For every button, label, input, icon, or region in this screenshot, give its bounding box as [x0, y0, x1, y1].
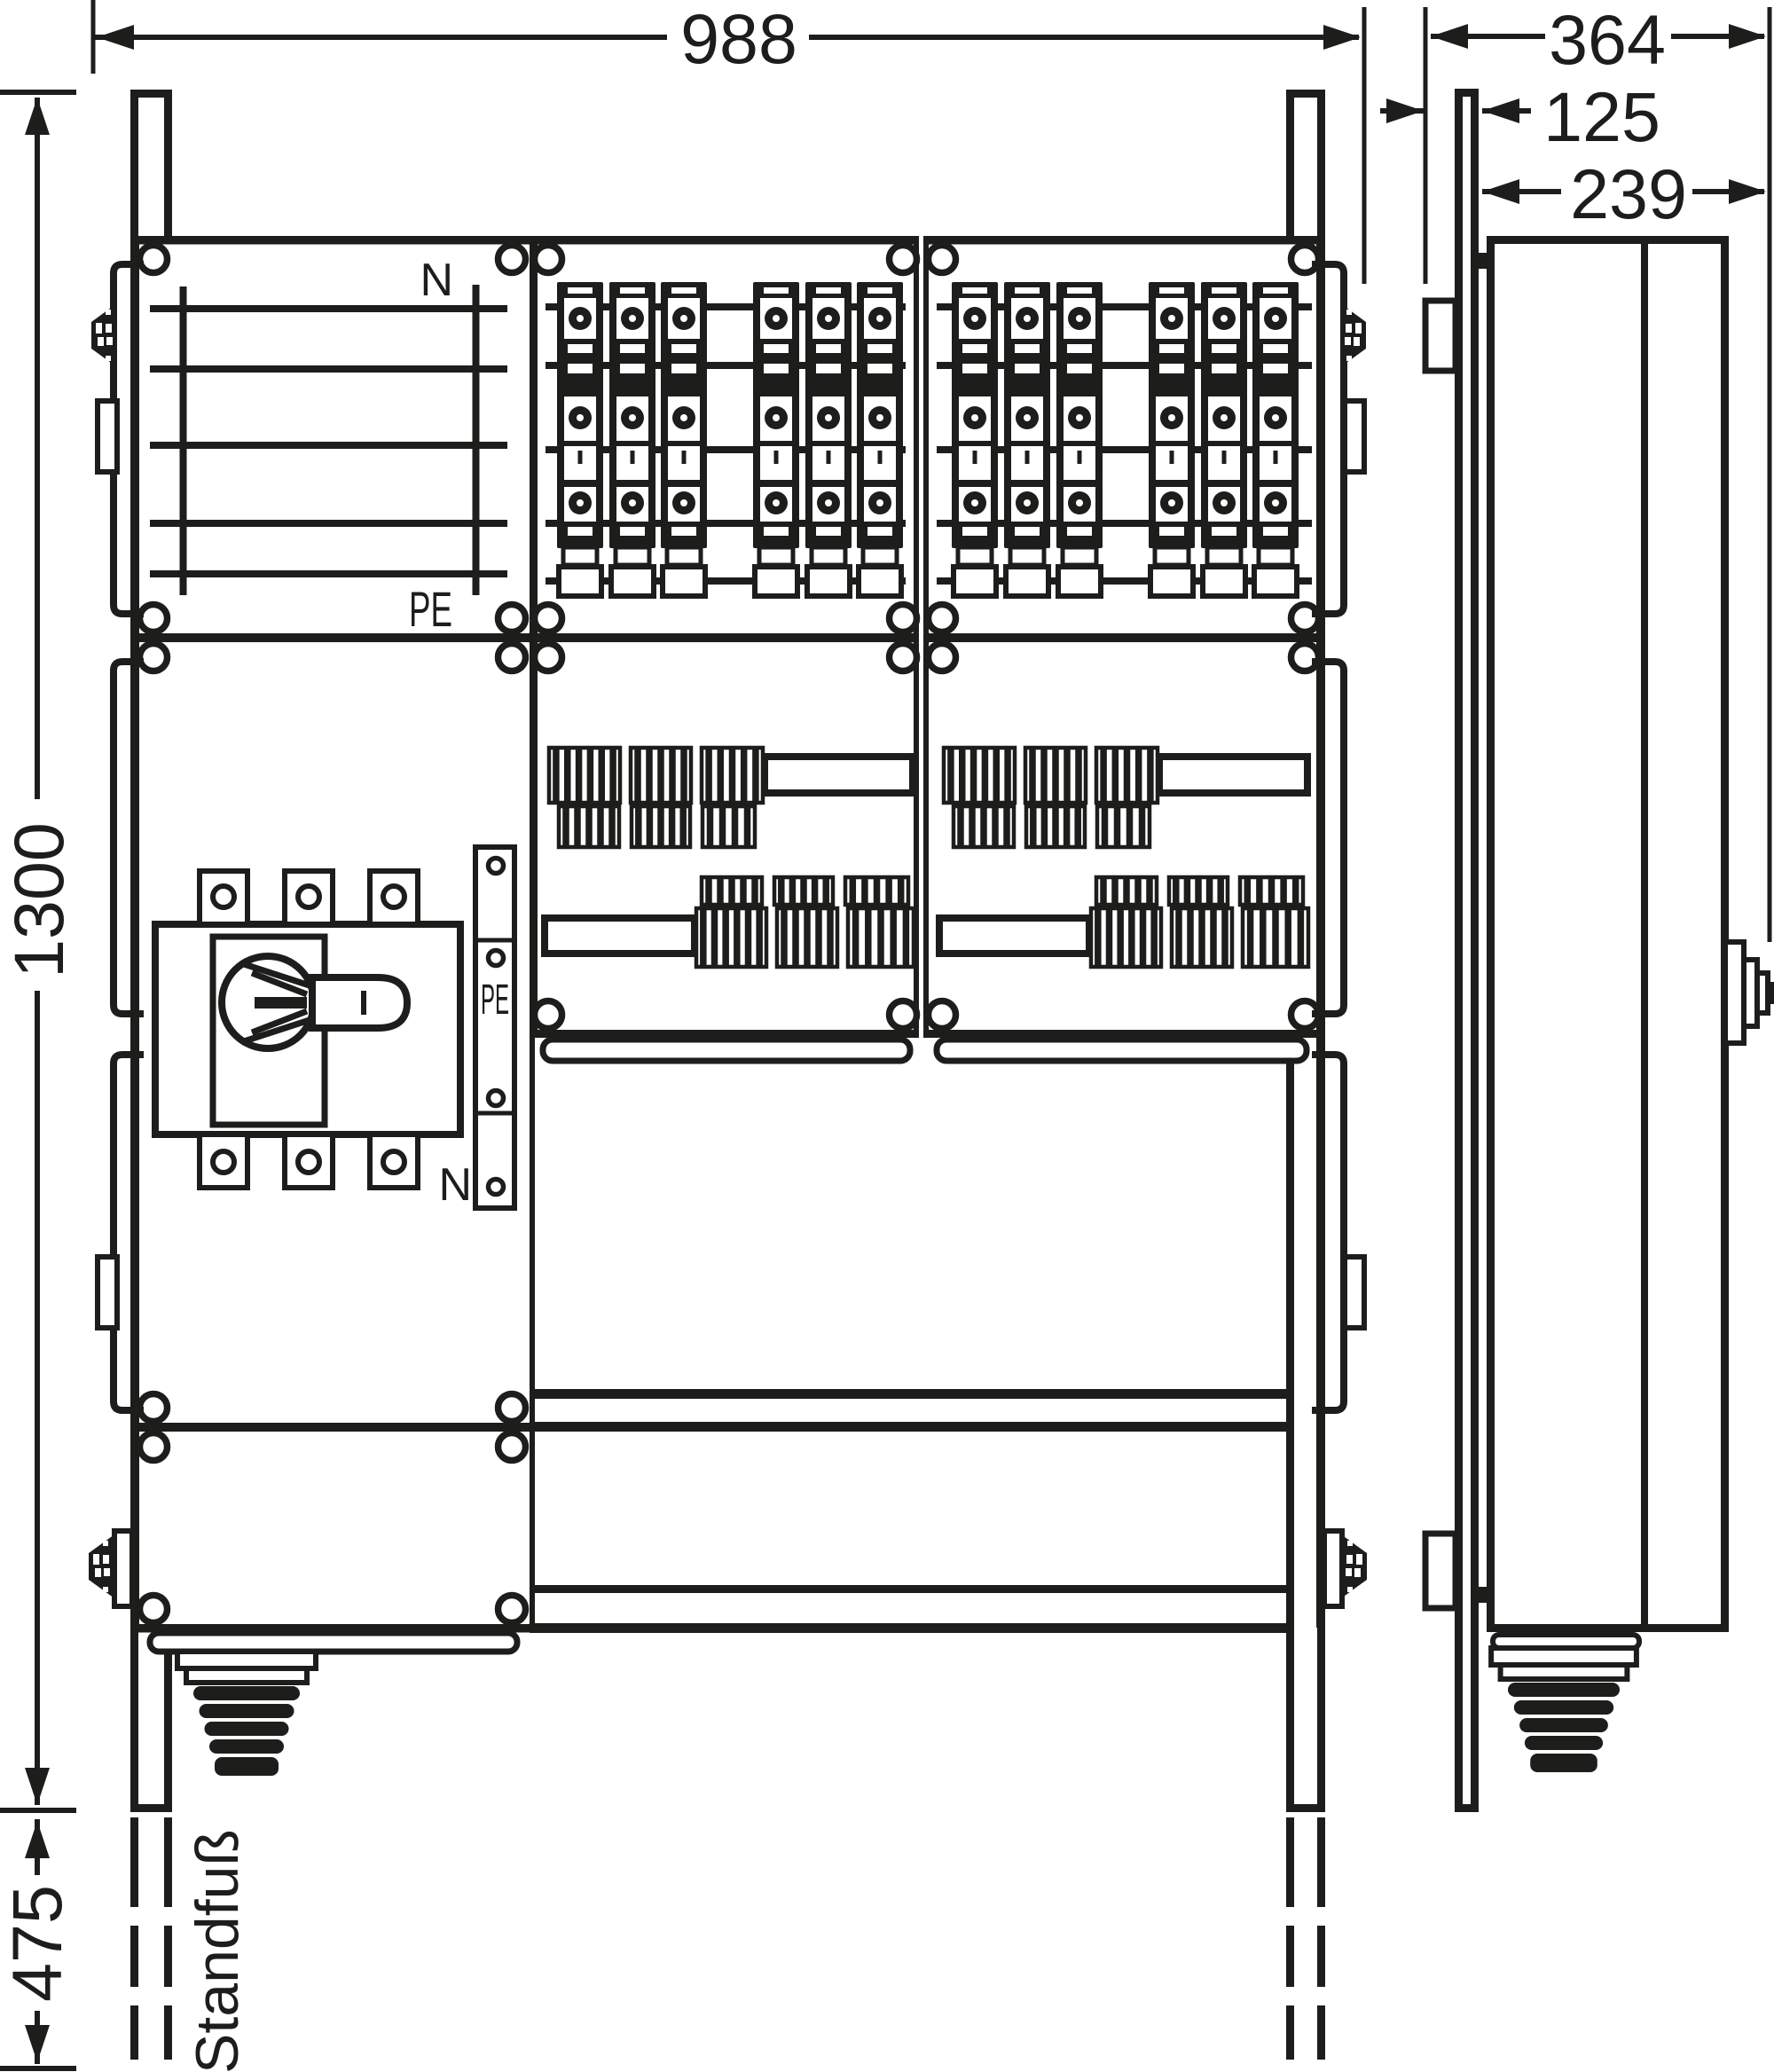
- svg-text:239: 239: [1570, 154, 1687, 233]
- svg-text:364: 364: [1549, 0, 1666, 79]
- svg-text:125: 125: [1543, 77, 1660, 156]
- svg-text:Standfuß: Standfuß: [184, 1829, 251, 2072]
- svg-text:1300: 1300: [0, 822, 78, 978]
- svg-text:N: N: [438, 1159, 472, 1211]
- svg-text:PE: PE: [409, 581, 452, 637]
- svg-text:PE: PE: [481, 977, 509, 1024]
- svg-text:988: 988: [680, 0, 797, 78]
- svg-text:475: 475: [0, 1885, 76, 2002]
- svg-text:N: N: [420, 255, 453, 306]
